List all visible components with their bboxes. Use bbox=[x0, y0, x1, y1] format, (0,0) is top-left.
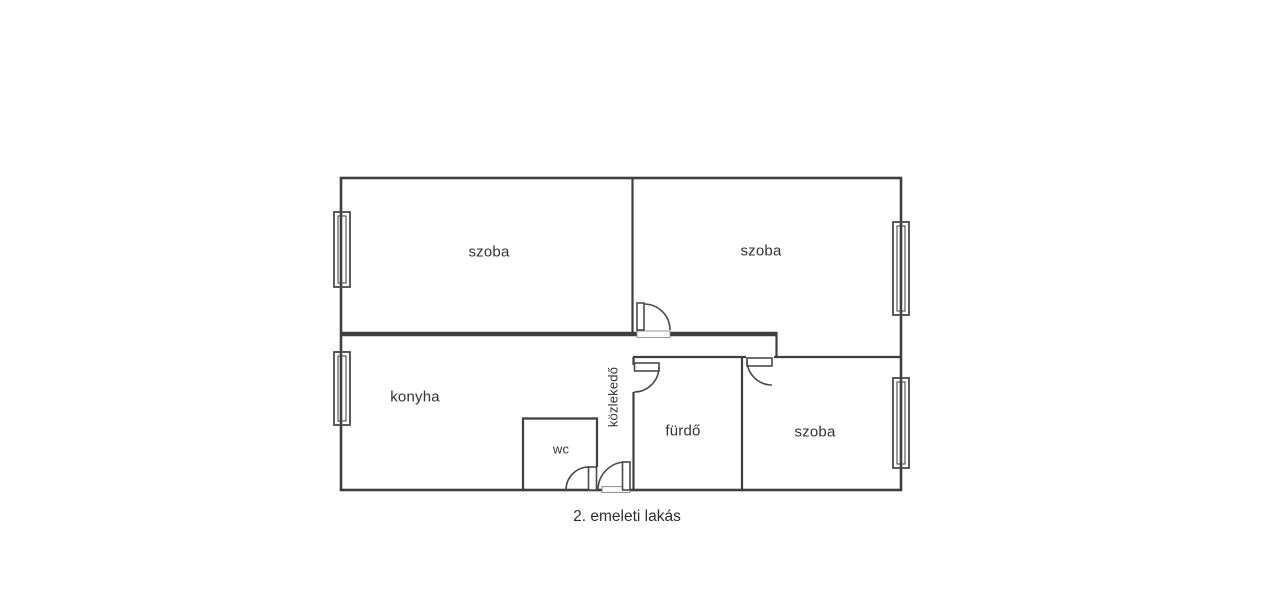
label-room-bottom-right: szoba bbox=[794, 424, 835, 441]
label-hallway: közlekedő bbox=[606, 367, 621, 427]
label-kitchen: konyha bbox=[390, 389, 440, 406]
door-room-bottom-right-leaf bbox=[747, 358, 772, 366]
door-room-bottom-right bbox=[747, 358, 772, 385]
label-bathroom: fürdő bbox=[665, 423, 700, 440]
door-room-top-right-arc bbox=[644, 304, 670, 330]
door-room-top-right-leaf bbox=[637, 303, 644, 330]
door-bathroom bbox=[634, 363, 659, 392]
plan-caption: 2. emeleti lakás bbox=[573, 508, 681, 526]
label-room-top-right: szoba bbox=[740, 243, 781, 260]
door-bathroom-leaf bbox=[635, 363, 660, 371]
label-wc: wc bbox=[553, 442, 569, 457]
door-wc-leaf bbox=[589, 467, 597, 490]
door-entrance-leaf bbox=[623, 462, 631, 490]
door-room-top-right bbox=[637, 303, 670, 337]
door-room-top-right-threshold bbox=[637, 331, 670, 337]
label-room-top-left: szoba bbox=[468, 244, 509, 261]
door-wc-arc bbox=[566, 467, 589, 490]
floorplan-page: szoba szoba konyha közlekedő fürdő wc sz… bbox=[0, 0, 1280, 603]
door-wc bbox=[566, 467, 597, 490]
